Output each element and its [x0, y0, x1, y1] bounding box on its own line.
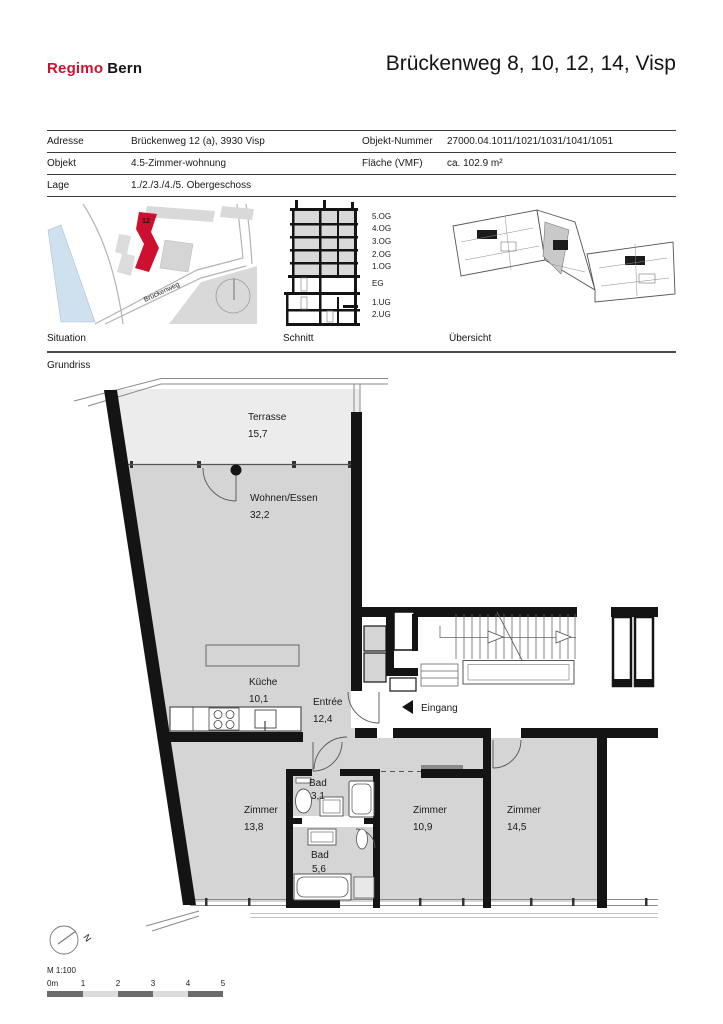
table-row: Adresse Brückenweg 12 (a), 3930 Visp Obj…	[47, 130, 676, 152]
room-name: Zimmer	[507, 805, 542, 816]
room-name: Bad	[311, 850, 329, 861]
floor-label: 2.UG	[372, 310, 391, 319]
floorplan: Terrasse 15,7 Wohnen/Essen 32,2 Küche 10…	[0, 374, 723, 1004]
section-graphics	[284, 200, 360, 326]
overview-graphics	[453, 210, 675, 302]
room-name: Entrée	[313, 697, 343, 708]
room-name: Zimmer	[413, 805, 448, 816]
floor-label: 2.OG	[372, 250, 391, 259]
room-name: Wohnen/Essen	[250, 493, 318, 504]
table-row: Lage 1./2./3./4./5. Obergeschoss	[47, 174, 676, 197]
section-divider	[47, 351, 676, 353]
datasheet-page: RegimoBern Brückenweg 8, 10, 12, 14, Vis…	[0, 0, 723, 1024]
floor-label: 1.UG	[372, 298, 391, 307]
room-name: Bad	[309, 778, 327, 789]
row-value: 27000.04.1011/1021/1031/1041/1051	[447, 136, 676, 147]
scale-tick: 5	[221, 979, 226, 988]
schnitt-caption: Schnitt	[283, 333, 314, 344]
floor-label: 4.OG	[372, 224, 391, 233]
row-label: Lage	[47, 180, 131, 191]
floor-label: EG	[372, 279, 384, 288]
scale-label: M 1:100	[47, 966, 76, 975]
floor-label: 5.OG	[372, 212, 391, 221]
scale-bar: M 1:100 0m 1 2 3 4 5	[47, 966, 226, 997]
row-label: Objekt	[47, 158, 131, 169]
room-name: Küche	[249, 677, 278, 688]
room-area: 13,8	[244, 822, 264, 833]
room-area: 3,1	[311, 791, 325, 802]
grundriss-caption: Grundriss	[47, 360, 90, 371]
row-value: ca. 102.9 m²	[447, 158, 676, 169]
table-row: Objekt 4.5-Zimmer-wohnung Fläche (VMF) c…	[47, 152, 676, 174]
overview-drawing	[449, 198, 676, 330]
room-name: Zimmer	[244, 805, 279, 816]
entrance-label: Eingang	[421, 703, 458, 714]
section-drawing: 5.OG 4.OG 3.OG 2.OG 1.OG EG 1.UG 2.UG	[283, 198, 418, 330]
room-area: 14,5	[507, 822, 527, 833]
row-label: Adresse	[47, 136, 131, 147]
sliding-door-leaf	[421, 765, 463, 769]
scale-tick: 1	[81, 979, 86, 988]
object-info-table: Adresse Brückenweg 12 (a), 3930 Visp Obj…	[47, 130, 676, 197]
logo-secondary: Bern	[107, 60, 142, 77]
scale-tick: 4	[186, 979, 191, 988]
room-area: 5,6	[312, 864, 326, 875]
room-area: 15,7	[248, 429, 268, 440]
row-label: Fläche (VMF)	[362, 158, 447, 169]
scale-tick: 3	[151, 979, 156, 988]
street-name-label: Brückenweg	[143, 281, 181, 304]
row-label: Objekt-Nummer	[362, 136, 447, 147]
floor-label: 3.OG	[372, 237, 391, 246]
building-number-label: 12	[142, 218, 150, 225]
storage-and-shaft	[362, 610, 418, 691]
north-arrow: N	[50, 926, 93, 954]
room-area: 10,9	[413, 822, 433, 833]
north-label: N	[81, 932, 93, 943]
situation-caption: Situation	[47, 333, 86, 344]
column-dot	[231, 465, 242, 476]
situation-map: 12 Brückenweg	[47, 198, 258, 328]
uebersicht-caption: Übersicht	[449, 333, 491, 344]
page-title: Brückenweg 8, 10, 12, 14, Visp	[386, 52, 676, 76]
bathtub	[294, 874, 351, 900]
room-name: Terrasse	[248, 412, 287, 423]
floor-label: 1.OG	[372, 262, 391, 271]
company-logo: RegimoBern	[47, 60, 142, 77]
map-graphics: 12 Brückenweg	[48, 204, 257, 324]
row-value: Brückenweg 12 (a), 3930 Visp	[131, 136, 362, 147]
room-area: 10,1	[249, 694, 269, 705]
room-area: 32,2	[250, 510, 270, 521]
row-value: 4.5-Zimmer-wohnung	[131, 158, 362, 169]
scale-tick: 2	[116, 979, 121, 988]
logo-primary: Regimo	[47, 60, 103, 77]
scale-tick: 0m	[47, 979, 58, 988]
row-value: 1./2./3./4./5. Obergeschoss	[131, 180, 362, 191]
room-area: 12,4	[313, 714, 333, 725]
floor-labels: 5.OG 4.OG 3.OG 2.OG 1.OG EG 1.UG 2.UG	[372, 212, 391, 319]
